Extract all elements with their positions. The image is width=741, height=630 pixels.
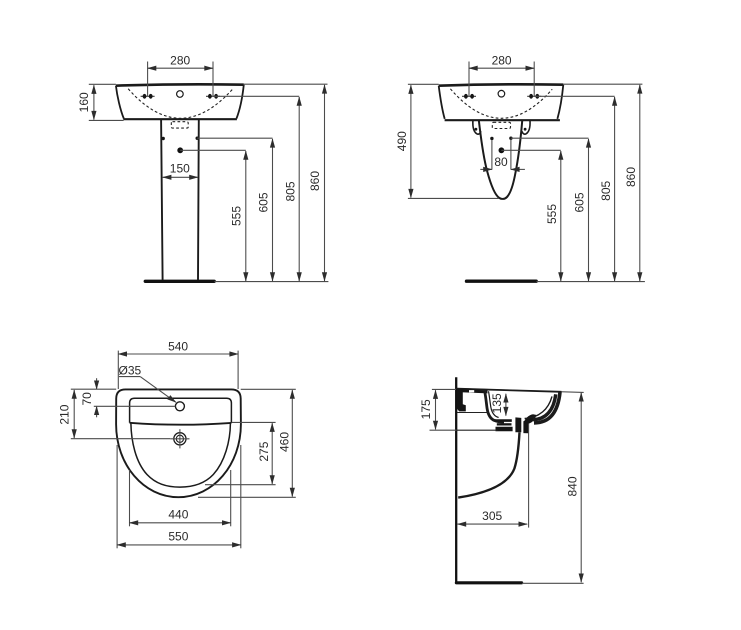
svg-text:440: 440 xyxy=(168,508,188,522)
svg-text:555: 555 xyxy=(545,204,559,224)
svg-text:210: 210 xyxy=(58,404,72,424)
svg-text:860: 860 xyxy=(624,167,638,187)
svg-text:80: 80 xyxy=(494,155,508,169)
svg-text:605: 605 xyxy=(257,192,271,212)
svg-text:150: 150 xyxy=(170,162,190,176)
svg-text:460: 460 xyxy=(278,432,292,452)
svg-text:275: 275 xyxy=(257,441,271,461)
svg-text:550: 550 xyxy=(168,530,188,544)
svg-text:540: 540 xyxy=(168,339,188,353)
svg-text:490: 490 xyxy=(395,131,409,151)
svg-text:555: 555 xyxy=(230,206,244,226)
svg-text:805: 805 xyxy=(599,180,613,200)
svg-text:280: 280 xyxy=(492,54,512,68)
svg-text:840: 840 xyxy=(565,476,579,496)
svg-text:135: 135 xyxy=(490,393,504,413)
svg-text:605: 605 xyxy=(572,192,586,212)
svg-text:175: 175 xyxy=(419,399,433,419)
svg-text:70: 70 xyxy=(80,392,94,406)
svg-text:160: 160 xyxy=(77,92,91,112)
svg-text:Ø35: Ø35 xyxy=(119,363,142,377)
svg-text:860: 860 xyxy=(308,171,322,191)
svg-text:805: 805 xyxy=(283,181,297,201)
svg-text:305: 305 xyxy=(482,509,502,523)
svg-text:280: 280 xyxy=(170,54,190,68)
